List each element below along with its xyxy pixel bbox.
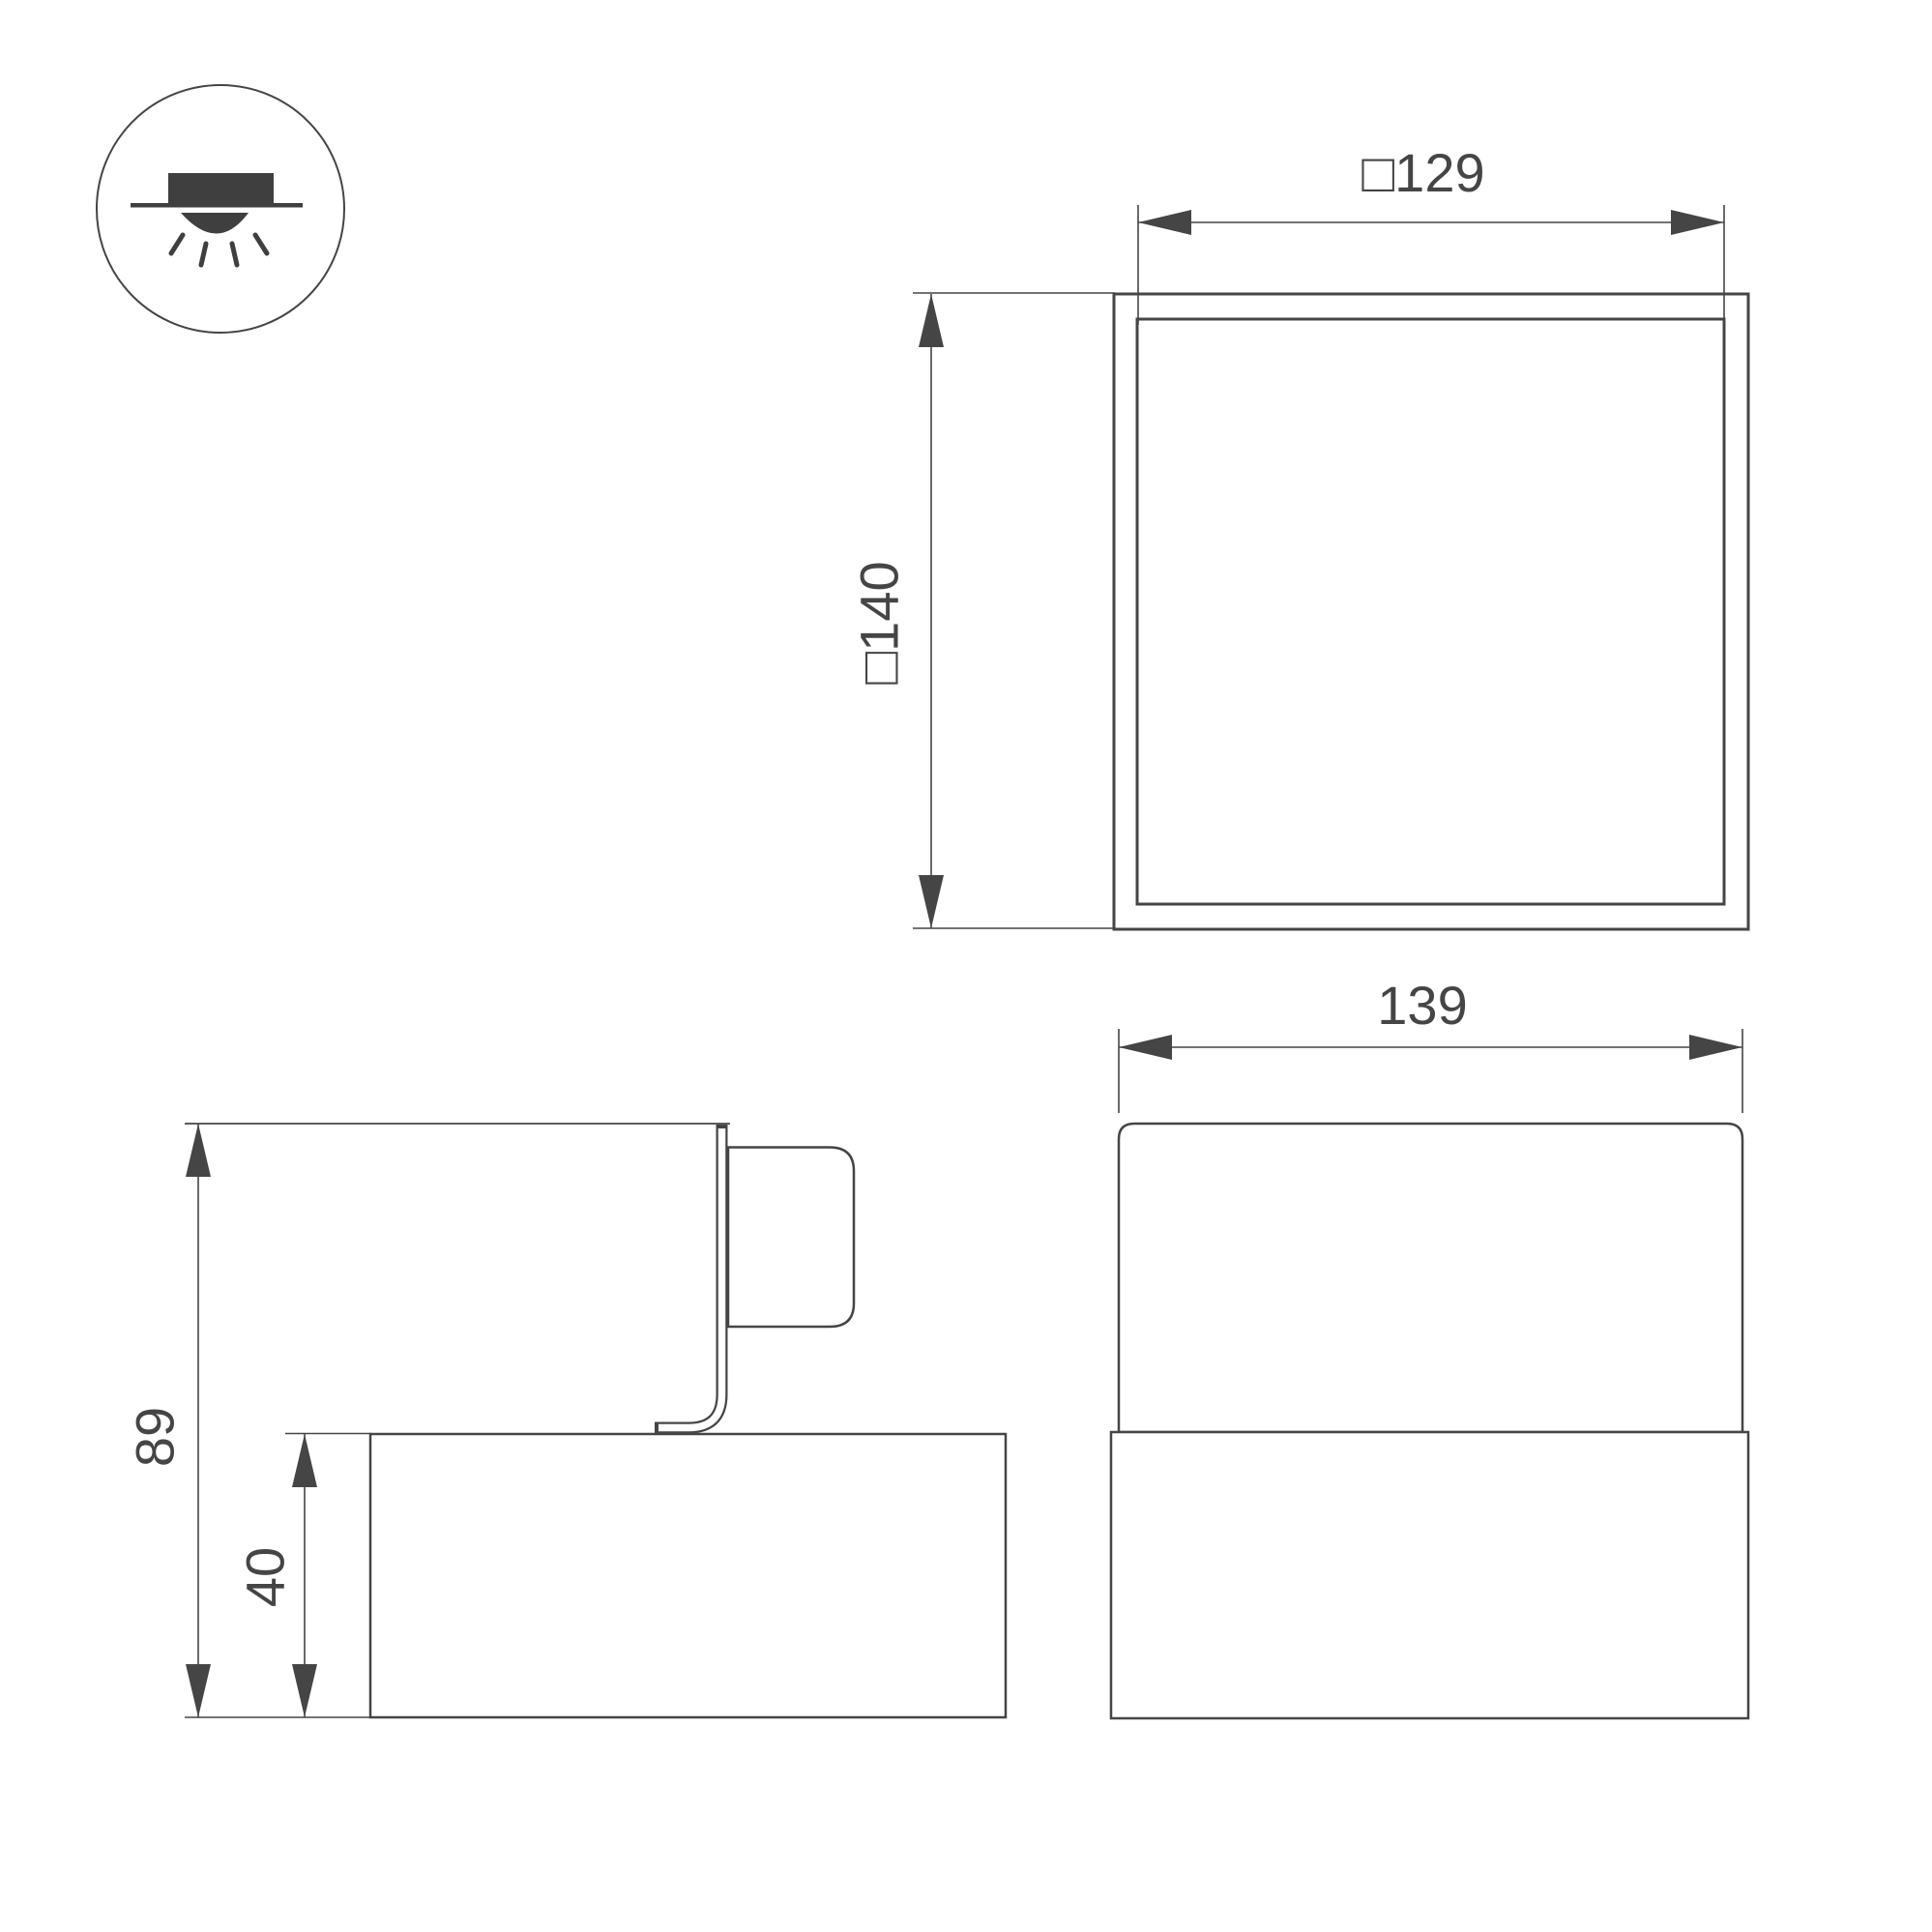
- dimension-top-outer-size: □140: [849, 293, 1116, 928]
- side-view-driver-box: [728, 1148, 854, 1328]
- front-view-base-block: [1111, 1432, 1748, 1718]
- dimension-label-front-width: 139: [1377, 975, 1467, 1036]
- dimension-side-base-height: 40: [235, 1434, 372, 1718]
- arrowhead-up-icon: [186, 1124, 211, 1177]
- dimension-label-top-outer: □140: [849, 561, 910, 684]
- icon-circle-border: [97, 85, 344, 333]
- icon-ceiling-line: [131, 203, 303, 208]
- technical-drawing-page: □129 □140 89: [0, 0, 1932, 1932]
- dimension-label-base-height: 40: [235, 1547, 296, 1607]
- arrowhead-down-icon: [919, 875, 944, 928]
- side-view-bracket-core: [659, 1128, 722, 1428]
- top-view: □129 □140: [849, 142, 1749, 929]
- side-view-bracket-outline: [655, 1125, 722, 1428]
- dimension-side-overall-height: 89: [125, 1124, 371, 1717]
- arrowhead-up-icon: [919, 294, 944, 347]
- arrowhead-left-icon: [1138, 210, 1191, 235]
- arrowhead-down-icon: [186, 1664, 211, 1717]
- icon-light-dome: [181, 213, 249, 234]
- side-view-base-block: [370, 1434, 1006, 1717]
- dimension-front-width: 139: [1119, 975, 1742, 1113]
- luminaire-dimension-drawing: □129 □140 89: [0, 0, 1932, 1932]
- arrowhead-right-icon: [1671, 210, 1724, 235]
- arrowhead-down-icon: [292, 1664, 317, 1717]
- icon-light-rays: [171, 235, 267, 265]
- side-view: 89 40: [125, 1124, 1007, 1717]
- icon-fixture-body: [168, 173, 274, 205]
- light-ray-icon: [232, 244, 237, 265]
- front-view: 139: [1111, 975, 1748, 1718]
- recessed-ceiling-downlight-mounting-icon: [97, 85, 344, 333]
- light-ray-icon: [255, 235, 267, 253]
- light-ray-icon: [201, 244, 206, 265]
- arrowhead-left-icon: [1119, 1035, 1172, 1060]
- front-view-lamp-head: [1119, 1124, 1742, 1432]
- arrowhead-right-icon: [1689, 1035, 1742, 1060]
- light-ray-icon: [171, 235, 183, 253]
- arrowhead-up-icon: [292, 1434, 317, 1487]
- dimension-top-width: □129: [1138, 142, 1724, 325]
- dimension-label-top-width: □129: [1361, 142, 1484, 203]
- top-view-inner-square: [1137, 319, 1724, 904]
- top-view-outer-square: [1114, 294, 1748, 929]
- dimension-label-overall-height: 89: [125, 1407, 186, 1467]
